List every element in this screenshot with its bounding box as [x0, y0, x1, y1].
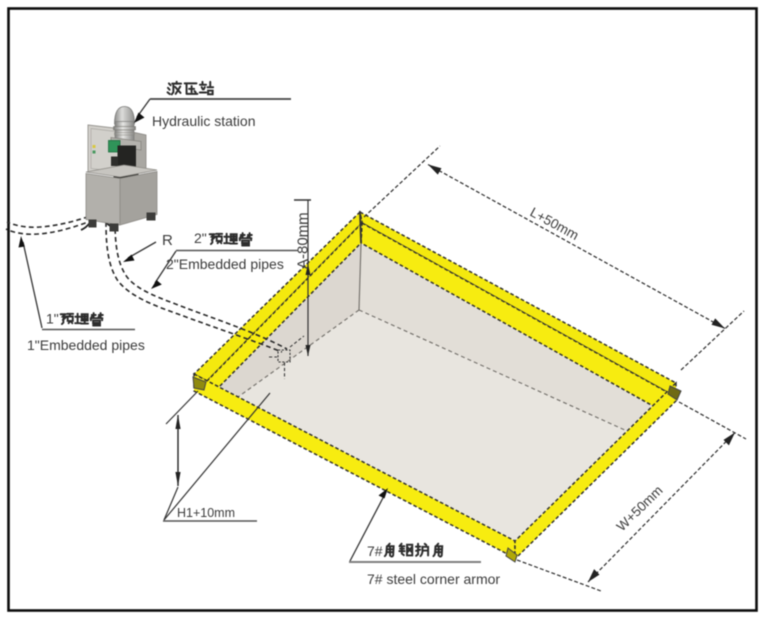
svg-text:7#: 7#	[367, 543, 383, 559]
svg-text:A-80mm: A-80mm	[295, 212, 312, 269]
svg-text:1"Embedded pipes: 1"Embedded pipes	[27, 337, 145, 353]
svg-text:2"Embedded pipes: 2"Embedded pipes	[166, 256, 284, 272]
svg-text:2": 2"	[194, 230, 207, 246]
svg-text:1": 1"	[46, 311, 59, 327]
svg-text:7# steel corner armor: 7# steel corner armor	[367, 571, 500, 587]
svg-text:Hydraulic station: Hydraulic station	[152, 113, 256, 129]
svg-text:H1+10mm: H1+10mm	[177, 506, 235, 520]
svg-text:R: R	[162, 232, 173, 249]
